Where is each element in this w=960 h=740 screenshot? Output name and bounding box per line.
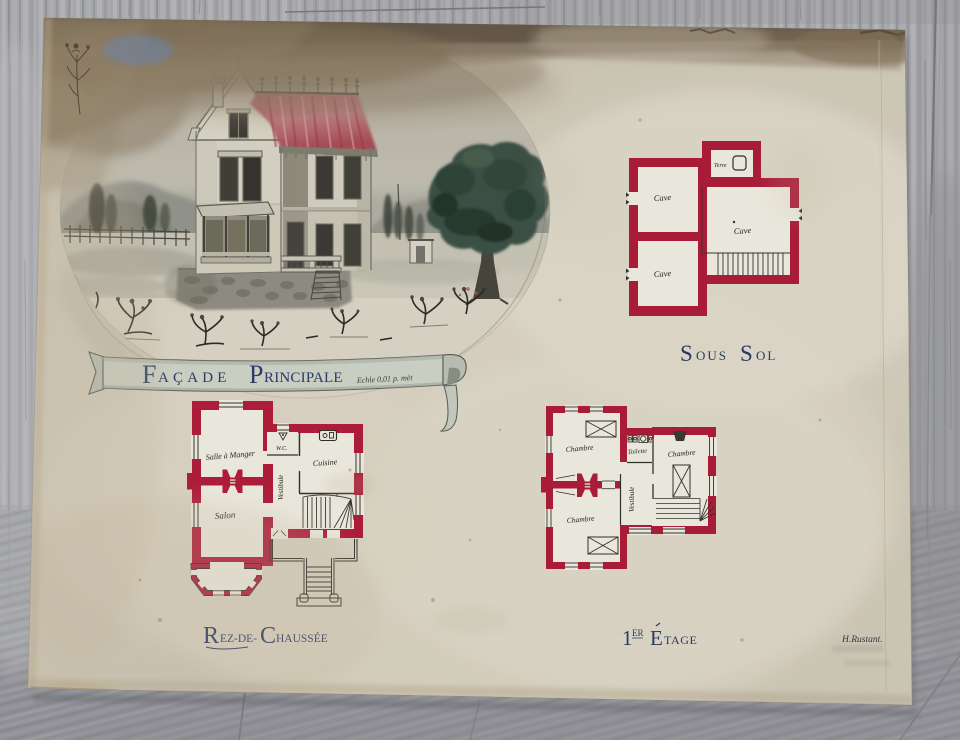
svg-text:TAGE: TAGE: [664, 633, 697, 647]
svg-text:Cave: Cave: [653, 268, 671, 279]
svg-text:Cave: Cave: [733, 225, 751, 236]
svg-text:H.Rustant.: H.Rustant.: [841, 635, 883, 645]
svg-text:1: 1: [622, 626, 633, 650]
svg-text:Terre: Terre: [714, 163, 727, 169]
svg-text:Vestibule: Vestibule: [277, 475, 285, 500]
svg-text:Toilette: Toilette: [628, 448, 648, 456]
svg-text:AÇADE: AÇADE: [158, 370, 231, 386]
svg-text:Cave: Cave: [653, 192, 671, 203]
svg-text:OL: OL: [756, 348, 777, 363]
svg-text:W.C.: W.C.: [276, 446, 287, 452]
svg-text:P: P: [249, 360, 263, 389]
svg-text:Cuisine: Cuisine: [313, 457, 338, 468]
svg-text:S: S: [680, 341, 693, 366]
svg-text:ER: ER: [632, 628, 644, 638]
svg-text:S: S: [740, 341, 753, 366]
svg-text:OUS: OUS: [696, 348, 728, 363]
svg-text:Vestibule: Vestibule: [628, 487, 636, 512]
svg-text:E: E: [650, 626, 663, 650]
svg-text:RINCIPALE: RINCIPALE: [264, 370, 343, 386]
